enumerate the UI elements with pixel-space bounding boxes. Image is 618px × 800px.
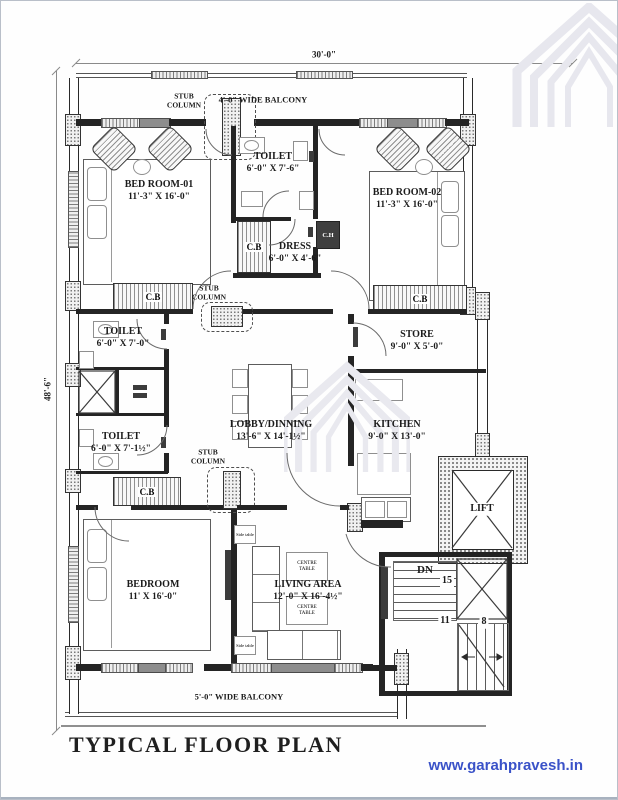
stair-count-1: 15 bbox=[440, 575, 454, 588]
room-name: BEDROOM bbox=[127, 579, 180, 592]
side-round-table bbox=[415, 159, 433, 175]
wall bbox=[76, 413, 168, 416]
wall bbox=[164, 314, 169, 324]
side-table-label: Side table bbox=[236, 643, 254, 648]
pillow bbox=[87, 529, 107, 563]
room-size: 9'-0" X 5'-0" bbox=[391, 341, 444, 353]
top-balcony-rail bbox=[76, 73, 467, 78]
room-size: 6'-0" X 7'-6" bbox=[247, 163, 300, 175]
dimension-width-label: 30'-0" bbox=[310, 49, 338, 60]
dimension-height-label: 48'-6" bbox=[42, 377, 53, 401]
room-name: LOBBY/DINNING bbox=[230, 419, 312, 432]
wash-basin bbox=[79, 351, 94, 369]
column bbox=[475, 292, 490, 320]
room-name: TOILET bbox=[97, 326, 150, 339]
tv-unit bbox=[381, 567, 388, 619]
plan-graphic bbox=[263, 191, 289, 217]
window bbox=[68, 546, 79, 623]
window bbox=[138, 663, 167, 673]
bed-line bbox=[111, 160, 112, 282]
room-label-toilet-top: TOILET 6'-0" X 7'-6" bbox=[247, 151, 300, 175]
window bbox=[68, 171, 79, 248]
sofa bbox=[267, 630, 341, 660]
room-label-kitchen: KITCHEN 9'-0" X 13'-0" bbox=[368, 419, 426, 443]
plot-boundary-line bbox=[61, 725, 486, 727]
lift-label: LIFT bbox=[468, 503, 495, 516]
cupboard: C.B bbox=[237, 221, 271, 273]
stairs-down-label: DN bbox=[417, 564, 433, 578]
wall bbox=[445, 119, 469, 126]
plan-graphic bbox=[79, 371, 115, 413]
window bbox=[271, 663, 336, 673]
room-size: 6'-0" X 7'-1½" bbox=[91, 443, 151, 455]
stair-count-2: 11 bbox=[438, 615, 451, 628]
room-name: DRESS bbox=[269, 241, 322, 254]
centre-table-label: CENTRE TABLE bbox=[292, 561, 322, 573]
side-table: Side table bbox=[234, 525, 256, 544]
cupboard-label: C.B bbox=[138, 487, 157, 497]
sink-basin bbox=[387, 501, 407, 518]
wall bbox=[115, 370, 119, 414]
centre-table-label: CENTRE TABLE bbox=[292, 605, 322, 617]
wall bbox=[76, 471, 168, 474]
wall bbox=[231, 126, 236, 223]
stair-flight-divider bbox=[478, 623, 481, 689]
wall bbox=[76, 309, 193, 314]
room-name: TOILET bbox=[247, 151, 300, 164]
side-table: Side table bbox=[234, 636, 256, 655]
plan-graphic bbox=[457, 559, 507, 619]
website-link[interactable]: www.garahpravesh.in bbox=[429, 757, 584, 774]
cupboard-label: C.B bbox=[411, 294, 430, 304]
room-label-toilet-mid: TOILET 6'-0" X 7'-0" bbox=[97, 326, 150, 350]
room-name: LIVING AREA bbox=[273, 579, 342, 592]
stair-flight-lower bbox=[457, 623, 509, 691]
door-frame bbox=[133, 385, 147, 390]
room-name: TOILET bbox=[91, 431, 151, 444]
window bbox=[359, 118, 389, 128]
room-label-bedroom1: BED ROOM-01 11'-3" X 16'-0" bbox=[125, 179, 194, 203]
wall bbox=[164, 453, 169, 473]
pillow bbox=[87, 567, 107, 601]
pillow bbox=[87, 205, 107, 239]
room-size: 6'-0" X 7'-0" bbox=[97, 338, 150, 350]
balcony-railing bbox=[151, 71, 208, 79]
wall bbox=[314, 119, 359, 126]
plan-graphic bbox=[517, 7, 618, 127]
door-frame bbox=[161, 437, 166, 448]
wall bbox=[254, 119, 314, 126]
wall bbox=[348, 314, 354, 324]
pillow bbox=[441, 215, 459, 247]
plan-graphic bbox=[331, 271, 369, 309]
column bbox=[65, 646, 81, 680]
wall bbox=[233, 273, 321, 278]
door-frame bbox=[133, 393, 147, 398]
plan-graphic bbox=[457, 559, 507, 619]
wash-basin bbox=[299, 191, 314, 210]
door-frame bbox=[161, 329, 166, 340]
plan-graphic bbox=[79, 371, 115, 413]
room-name: BED ROOM-01 bbox=[125, 179, 194, 192]
room-label-dress: DRESS 6'-0" X 4'-6" bbox=[269, 241, 322, 265]
window bbox=[139, 118, 171, 128]
brand-logo-watermark bbox=[489, 3, 618, 128]
pillow bbox=[87, 167, 107, 201]
plan-graphic bbox=[329, 406, 366, 472]
room-name: BED ROOM-02 bbox=[373, 187, 442, 200]
room-name: STORE bbox=[391, 329, 444, 342]
window bbox=[165, 663, 193, 673]
room-label-bedroom2: BED ROOM-02 11'-3" X 16'-0" bbox=[373, 187, 442, 211]
pillow bbox=[441, 181, 459, 213]
sink-basin bbox=[365, 501, 385, 518]
cupboard-label: C.B bbox=[245, 242, 264, 252]
stub-column-label: STUB COLUMN bbox=[185, 448, 231, 465]
stub-column-label: STUB COLUMN bbox=[186, 284, 232, 301]
column bbox=[65, 281, 81, 311]
wall bbox=[169, 119, 206, 126]
page-title: TYPICAL FLOOR PLAN bbox=[69, 732, 343, 758]
room-size: 13'-6" X 14'-1½" bbox=[230, 431, 312, 443]
cupboard: C.B bbox=[113, 477, 181, 506]
wall bbox=[76, 505, 98, 510]
wall bbox=[385, 552, 511, 557]
top-balcony-label: 4'-0" WIDE BALCONY bbox=[219, 95, 308, 106]
room-size: 11' X 16'-0" bbox=[127, 591, 180, 603]
bottom-balcony-label: 5'-0" WIDE BALCONY bbox=[195, 692, 284, 703]
stair-count-3: 8 bbox=[480, 616, 489, 629]
sheet-bottom-edge bbox=[1, 797, 617, 799]
wall bbox=[76, 664, 101, 671]
window bbox=[334, 663, 363, 673]
room-size: 9'-0" X 13'-0" bbox=[368, 431, 426, 443]
tv-unit bbox=[225, 550, 231, 600]
door-frame bbox=[353, 327, 358, 347]
room-name: KITCHEN bbox=[368, 419, 426, 432]
room-label-bedroom3: BEDROOM 11' X 16'-0" bbox=[127, 579, 180, 603]
door-frame bbox=[308, 227, 313, 237]
balcony-railing bbox=[296, 71, 353, 79]
wall bbox=[76, 119, 101, 126]
window bbox=[387, 118, 419, 128]
room-label-lobby: LOBBY/DINNING 13'-6" X 14'-1½" bbox=[230, 419, 312, 443]
stub-column bbox=[223, 471, 241, 509]
window bbox=[101, 663, 140, 673]
window bbox=[231, 663, 273, 673]
toilet-wc-bowl bbox=[244, 140, 259, 151]
window bbox=[101, 118, 141, 128]
room-size: 6'-0" X 4'-6" bbox=[269, 253, 322, 265]
room-size: 11'-3" X 16'-0" bbox=[125, 191, 194, 203]
wall bbox=[340, 505, 349, 510]
bottom-balcony-rail bbox=[65, 712, 397, 717]
window bbox=[417, 118, 447, 128]
plan-graphic bbox=[457, 559, 507, 619]
stub-column bbox=[211, 306, 243, 327]
plan-graphic bbox=[568, 52, 610, 127]
wall bbox=[361, 520, 403, 528]
room-size: 12'-0" X 16'-4½" bbox=[273, 591, 342, 603]
cupboard-label: C.B bbox=[144, 292, 163, 302]
centre-table: CENTRE TABLE bbox=[286, 552, 328, 581]
side-table-label: Side table bbox=[236, 532, 254, 537]
room-label-store: STORE 9'-0" X 5'-0" bbox=[391, 329, 444, 353]
side-round-table bbox=[133, 159, 151, 175]
cupboard: C.B bbox=[113, 283, 193, 311]
toilet-wc-bowl bbox=[98, 456, 113, 467]
room-size: 11'-3" X 16'-0" bbox=[373, 199, 442, 211]
floor-plan-sheet: 30'-0" 48'-6" 4'-0" WIDE BALCONY STUB CO… bbox=[0, 0, 618, 800]
room-label-living: LIVING AREA 12'-0" X 16'-4½" bbox=[273, 579, 342, 603]
bed-line bbox=[111, 520, 112, 648]
plan-graphic bbox=[79, 371, 115, 413]
wall bbox=[373, 665, 397, 671]
wall bbox=[385, 691, 512, 696]
wall bbox=[204, 664, 231, 671]
chest-label: C.H bbox=[322, 232, 333, 239]
plan-graphic bbox=[319, 129, 345, 155]
dining-chair bbox=[232, 395, 248, 414]
wall bbox=[361, 664, 373, 671]
door-frame bbox=[309, 151, 314, 162]
dining-chair bbox=[232, 369, 248, 388]
wall bbox=[237, 505, 287, 510]
dimension-line-left bbox=[56, 71, 57, 731]
wall bbox=[368, 309, 467, 314]
room-label-toilet-low: TOILET 6'-0" X 7'-1½" bbox=[91, 431, 151, 455]
stub-column-label: STUB COLUMN bbox=[161, 92, 207, 109]
wash-basin bbox=[241, 191, 263, 207]
